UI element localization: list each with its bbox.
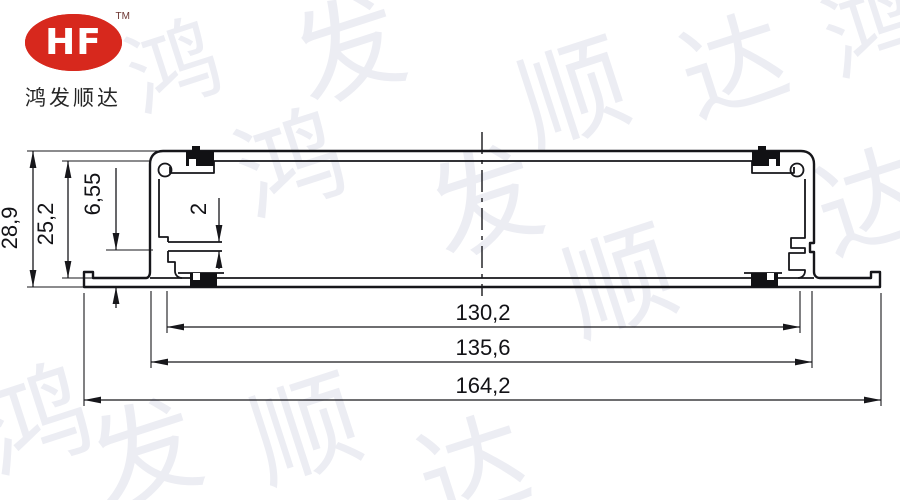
dim-label-total-height: 28,9 [0,207,22,250]
screw-mark-top-left [192,146,200,152]
arrow-up [216,251,223,268]
right-wall-inner [789,179,805,278]
screw-mark-top-right [758,146,766,152]
arrow-right [783,324,800,331]
arrow-left [84,397,101,404]
arrow-down [30,270,37,287]
dim-hole-span: 130,2 [167,291,800,333]
dim-label-total-width: 164,2 [455,373,510,398]
left-wall-slot-rib [168,242,222,251]
arrow-up [30,151,37,168]
dim-label-groove-height: 6,55 [80,173,105,216]
screw-channel-notch [193,273,200,280]
dim-label-hole-span: 130,2 [455,300,510,325]
drawing-canvas: 鸿 发 顺 达 鸿 鸿 发 顺 达 鸿 发 顺 达 HF TM 鸿发顺达 [0,0,900,500]
arrow-left [167,324,184,331]
dim-total-height: 28,9 [0,151,163,287]
right-screw-hole [791,164,804,177]
arrow-up [65,161,72,178]
arrow-up [113,287,120,304]
left-wall-inner [159,179,182,278]
arrow-down [113,233,120,250]
dim-label-wall-height: 25,2 [33,203,58,246]
screw-channel-notch [767,273,774,280]
dim-slot-gap: 2 [186,198,222,269]
arrow-down [216,225,223,242]
screw-channel-notch [769,159,776,166]
dim-label-body-width: 135,6 [455,335,510,360]
arrow-right [864,397,881,404]
arrow-right [795,359,812,366]
arrow-left [151,359,168,366]
screw-channel-notch [189,159,196,166]
profile-drawing: 28,9 25,2 6,55 2 [0,0,900,500]
dim-label-slot-gap: 2 [186,203,211,215]
arrow-down [65,261,72,278]
